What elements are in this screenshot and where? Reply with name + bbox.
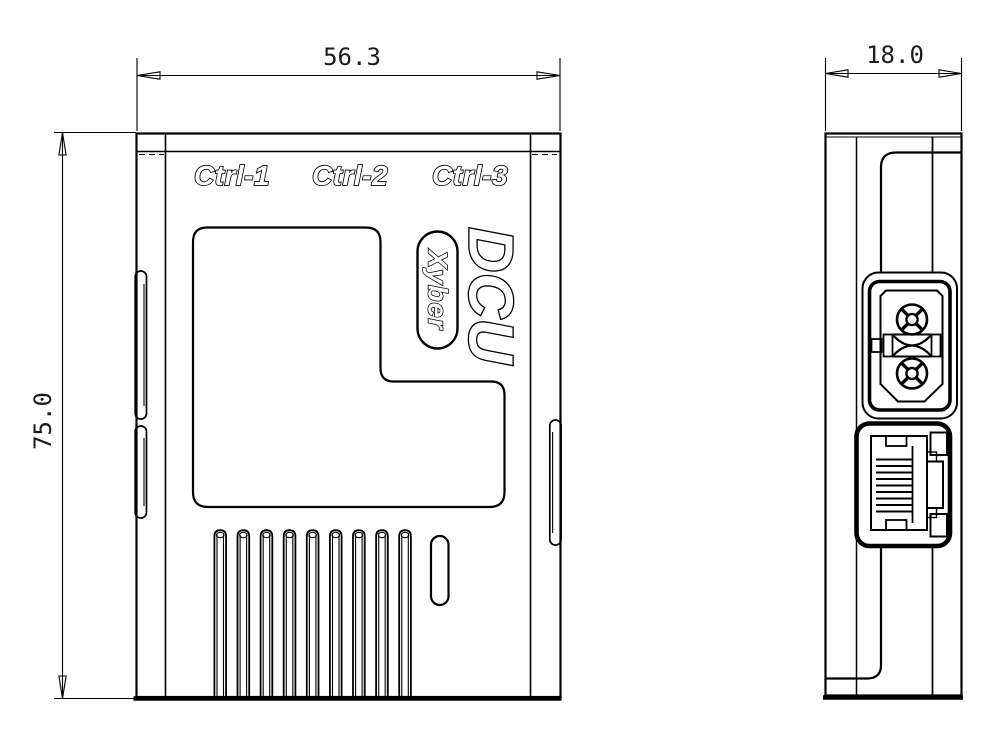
power-pin-lower [897,359,927,389]
technical-drawing-canvas [0,0,1000,737]
vent-slots [214,530,411,696]
side-view [823,134,963,698]
side-depth-dimension-text: 18.0 [866,41,924,69]
side-panel-edge-upper [881,153,962,273]
dimension-front-height [54,133,136,699]
connector-key-spool [872,335,941,357]
front-height-dimension-text: 75.0 [29,392,57,450]
port-label-ctrl-2: Ctrl-2 [312,160,388,192]
ethernet-pins [876,446,913,523]
technical-drawing-page: 56.3 75.0 18.0 Ctrl-1 Ctrl-2 Ctrl-3 DCU … [0,0,1000,737]
product-name-text: DCU [455,227,526,364]
side-enclosure-outline [826,134,962,696]
port-label-ctrl-1: Ctrl-1 [194,160,270,192]
brand-name-text: Xyber [422,250,453,330]
front-enclosure-outline [137,134,561,698]
power-connector [863,273,958,419]
side-panel-edge-lower [827,547,882,679]
front-width-dimension-text: 56.3 [323,43,381,71]
oblong-slot [431,536,449,605]
ethernet-port [857,424,951,547]
ethernet-latch-slot [927,462,943,509]
front-view [134,134,562,699]
port-label-ctrl-3: Ctrl-3 [432,160,508,192]
power-pin-upper [897,305,927,335]
